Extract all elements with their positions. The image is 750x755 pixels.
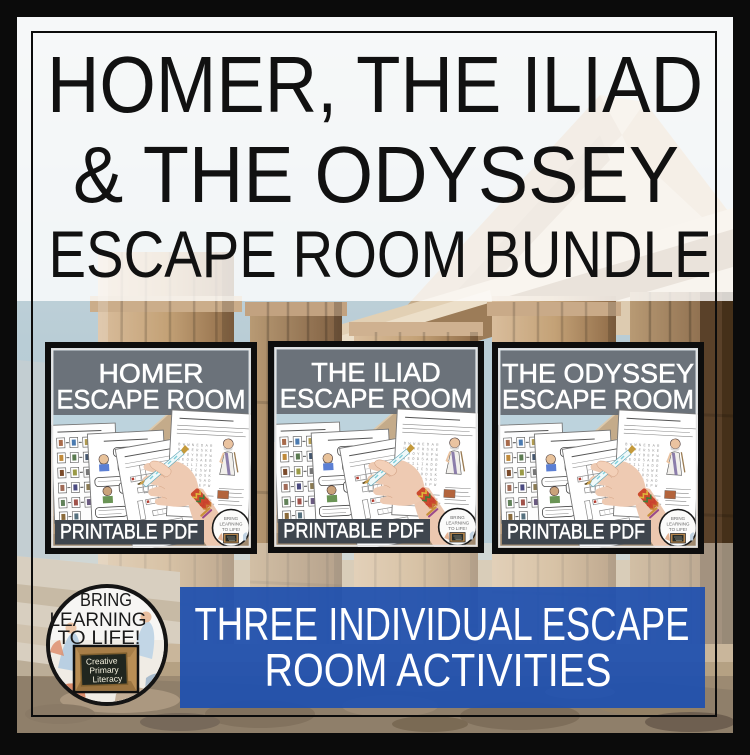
svg-text:THREE INDIVIDUAL ESCAPE: THREE INDIVIDUAL ESCAPE bbox=[195, 598, 690, 650]
svg-text:PRINTABLE PDF: PRINTABLE PDF bbox=[283, 520, 424, 543]
svg-text:LEARNING: LEARNING bbox=[446, 521, 470, 526]
svg-text:& THE ODYSSEY: & THE ODYSSEY bbox=[73, 130, 679, 219]
svg-text:ROOM ACTIVITIES: ROOM ACTIVITIES bbox=[265, 644, 612, 696]
svg-text:TO LIFE!: TO LIFE! bbox=[222, 527, 240, 532]
svg-text:ESCAPE ROOM: ESCAPE ROOM bbox=[502, 385, 694, 415]
svg-text:BRING: BRING bbox=[224, 516, 239, 521]
svg-text:LEARNING: LEARNING bbox=[219, 522, 243, 527]
svg-text:PRINTABLE PDF: PRINTABLE PDF bbox=[507, 521, 645, 544]
svg-text:ESCAPE ROOM: ESCAPE ROOM bbox=[280, 383, 473, 414]
svg-text:TO LIFE!: TO LIFE! bbox=[669, 527, 687, 532]
svg-text:Literacy: Literacy bbox=[92, 673, 123, 684]
svg-text:BRING: BRING bbox=[450, 515, 465, 520]
svg-text:TO LIFE!: TO LIFE! bbox=[448, 526, 466, 531]
svg-text:LEARNING: LEARNING bbox=[666, 522, 690, 527]
svg-text:HOMER, THE ILIAD: HOMER, THE ILIAD bbox=[47, 40, 703, 129]
svg-text:ESCAPE ROOM: ESCAPE ROOM bbox=[57, 385, 246, 415]
svg-text:BRING: BRING bbox=[80, 590, 132, 610]
svg-text:PRINTABLE PDF: PRINTABLE PDF bbox=[60, 521, 198, 544]
svg-text:ESCAPE ROOM BUNDLE: ESCAPE ROOM BUNDLE bbox=[49, 217, 712, 291]
svg-text:BRING: BRING bbox=[671, 516, 686, 521]
